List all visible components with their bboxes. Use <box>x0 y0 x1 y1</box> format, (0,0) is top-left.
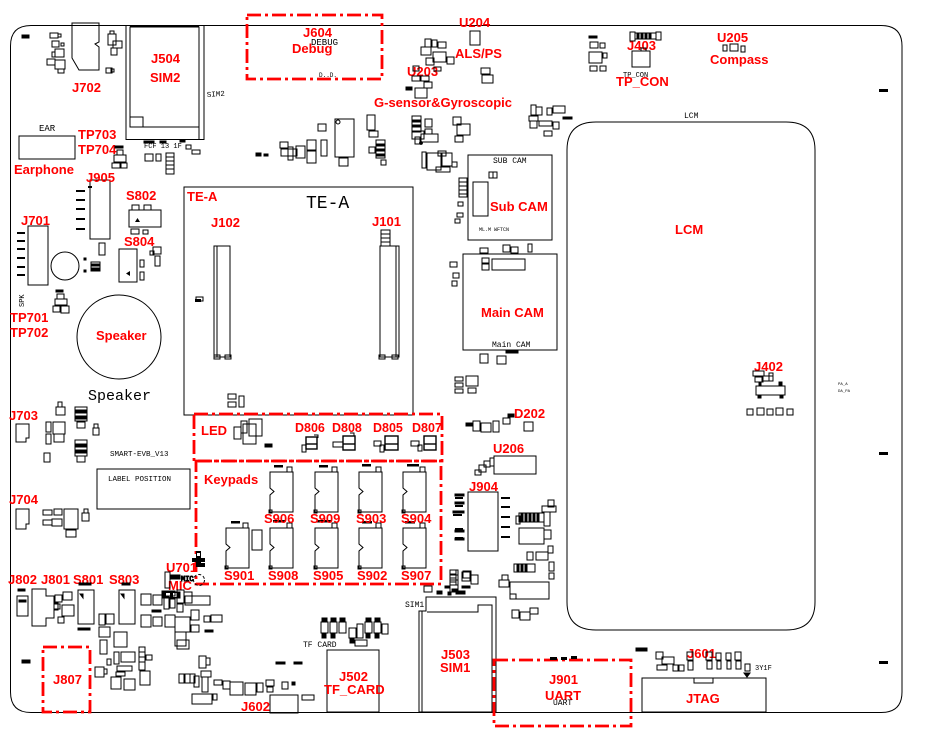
svg-text:TP701: TP701 <box>10 310 48 325</box>
svg-text:LCM: LCM <box>684 112 699 121</box>
svg-text:J807: J807 <box>53 672 82 687</box>
svg-text:SMART-EVB_V13: SMART-EVB_V13 <box>110 451 169 459</box>
svg-text:U204: U204 <box>459 15 491 30</box>
svg-text:S907: S907 <box>401 568 431 583</box>
svg-text:J402: J402 <box>754 359 783 374</box>
svg-text:Sub CAM: Sub CAM <box>490 199 548 214</box>
svg-text:TF_CARD: TF_CARD <box>324 682 385 697</box>
svg-text:S909: S909 <box>310 511 340 526</box>
svg-text:TE-A: TE-A <box>187 189 218 204</box>
svg-text:MIC: MIC <box>181 576 194 584</box>
svg-text:Speaker: Speaker <box>88 388 151 405</box>
svg-text:S804: S804 <box>124 234 155 249</box>
svg-text:SIM2: SIM2 <box>150 70 180 85</box>
svg-text:J701: J701 <box>21 213 50 228</box>
svg-text:Main CAM: Main CAM <box>492 341 531 350</box>
svg-text:3Y1F: 3Y1F <box>755 665 772 673</box>
svg-text:J602: J602 <box>241 699 270 714</box>
svg-text:D805: D805 <box>373 421 403 435</box>
svg-text:J904: J904 <box>469 479 499 494</box>
svg-text:SIM1: SIM1 <box>405 601 424 610</box>
svg-text:S906: S906 <box>264 511 294 526</box>
svg-text:LCM: LCM <box>675 222 703 237</box>
svg-text:D807: D807 <box>412 421 442 435</box>
svg-text:U205: U205 <box>717 30 748 45</box>
svg-text:J905: J905 <box>86 170 115 185</box>
svg-text:DEBUG: DEBUG <box>311 38 338 48</box>
svg-text:U701: U701 <box>166 560 197 575</box>
svg-text:J901: J901 <box>549 672 578 687</box>
svg-text:ML.M WFTCN: ML.M WFTCN <box>479 227 509 233</box>
svg-text:S902: S902 <box>357 568 387 583</box>
svg-text:TP703: TP703 <box>78 127 116 142</box>
svg-text:S802: S802 <box>126 188 156 203</box>
svg-text:TE-A: TE-A <box>306 194 349 214</box>
svg-text:PA_A: PA_A <box>838 383 848 387</box>
svg-text:J703: J703 <box>9 408 38 423</box>
svg-text:TP702: TP702 <box>10 325 48 340</box>
svg-text:J504: J504 <box>151 51 181 66</box>
svg-text:TP_CON: TP_CON <box>623 72 648 80</box>
svg-text:LABEL POSITION: LABEL POSITION <box>108 476 171 484</box>
svg-text:SIM1: SIM1 <box>440 660 470 675</box>
svg-text:D..D.: D..D. <box>319 72 337 79</box>
svg-text:S905: S905 <box>313 568 343 583</box>
svg-text:LED: LED <box>201 423 227 438</box>
svg-text:J704: J704 <box>9 492 39 507</box>
svg-text:J702: J702 <box>72 80 101 95</box>
svg-text:S908: S908 <box>268 568 298 583</box>
svg-text:J102: J102 <box>211 215 240 230</box>
svg-text:EAR: EAR <box>39 124 56 134</box>
svg-text:D806: D806 <box>295 421 325 435</box>
svg-text:Compass: Compass <box>710 52 769 67</box>
svg-text:FCF 13 1F: FCF 13 1F <box>144 143 182 151</box>
svg-text:J802: J802 <box>8 572 37 587</box>
svg-text:Speaker: Speaker <box>96 328 147 343</box>
svg-text:SUB CAM: SUB CAM <box>493 157 527 166</box>
svg-text:D808: D808 <box>332 421 362 435</box>
svg-text:J101: J101 <box>372 214 401 229</box>
svg-text:SPK: SPK <box>19 294 27 307</box>
svg-text:J801: J801 <box>41 572 70 587</box>
svg-text:UART: UART <box>553 699 572 708</box>
svg-text:S904: S904 <box>401 511 432 526</box>
svg-text:Keypads: Keypads <box>204 472 258 487</box>
svg-text:JTAG: JTAG <box>686 691 720 706</box>
svg-text:D202: D202 <box>514 406 545 421</box>
svg-text:TP704: TP704 <box>78 142 117 157</box>
svg-text:TF CARD: TF CARD <box>303 641 337 650</box>
svg-text:DA_PA: DA_PA <box>838 390 851 394</box>
svg-text:SIM2: SIM2 <box>207 91 226 100</box>
svg-text:Main CAM: Main CAM <box>481 305 544 320</box>
svg-text:S903: S903 <box>356 511 386 526</box>
svg-text:Earphone: Earphone <box>14 162 74 177</box>
svg-text:G-sensor&Gyroscopic: G-sensor&Gyroscopic <box>374 95 512 110</box>
svg-text:S901: S901 <box>224 568 254 583</box>
svg-text:ALS/PS: ALS/PS <box>455 46 502 61</box>
svg-text:U206: U206 <box>493 441 524 456</box>
